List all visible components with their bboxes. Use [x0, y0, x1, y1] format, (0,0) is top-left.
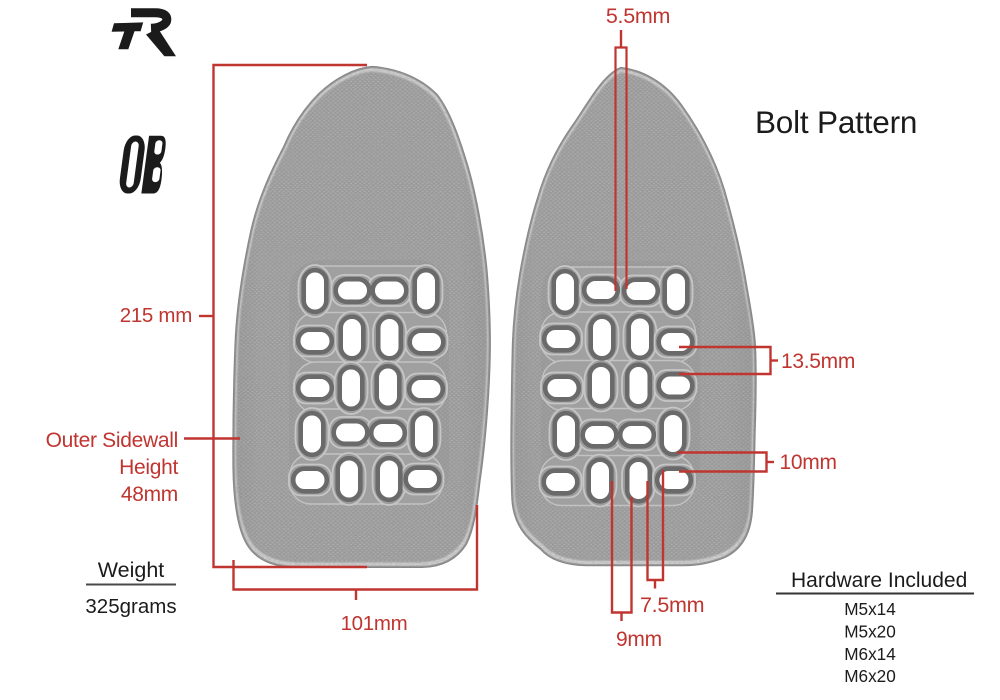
svg-text:Bolt Pattern: Bolt Pattern — [755, 104, 917, 140]
svg-text:M5x20: M5x20 — [844, 621, 896, 641]
svg-text:Outer Sidewall: Outer Sidewall — [46, 429, 178, 452]
svg-text:13.5mm: 13.5mm — [781, 350, 855, 373]
svg-text:48mm: 48mm — [121, 483, 178, 506]
svg-text:101mm: 101mm — [341, 612, 408, 635]
svg-text:Weight: Weight — [98, 558, 165, 582]
svg-text:Hardware Included: Hardware Included — [791, 569, 967, 592]
svg-text:7.5mm: 7.5mm — [640, 593, 704, 617]
svg-text:9mm: 9mm — [616, 628, 662, 651]
svg-text:Height: Height — [119, 456, 178, 479]
svg-text:10mm: 10mm — [780, 451, 837, 474]
svg-text:5.5mm: 5.5mm — [606, 4, 670, 28]
svg-text:M6x20: M6x20 — [844, 666, 896, 686]
svg-text:M6x14: M6x14 — [844, 644, 896, 664]
svg-text:215 mm: 215 mm — [120, 304, 192, 327]
svg-text:325grams: 325grams — [85, 595, 176, 618]
svg-text:M5x14: M5x14 — [844, 599, 896, 619]
